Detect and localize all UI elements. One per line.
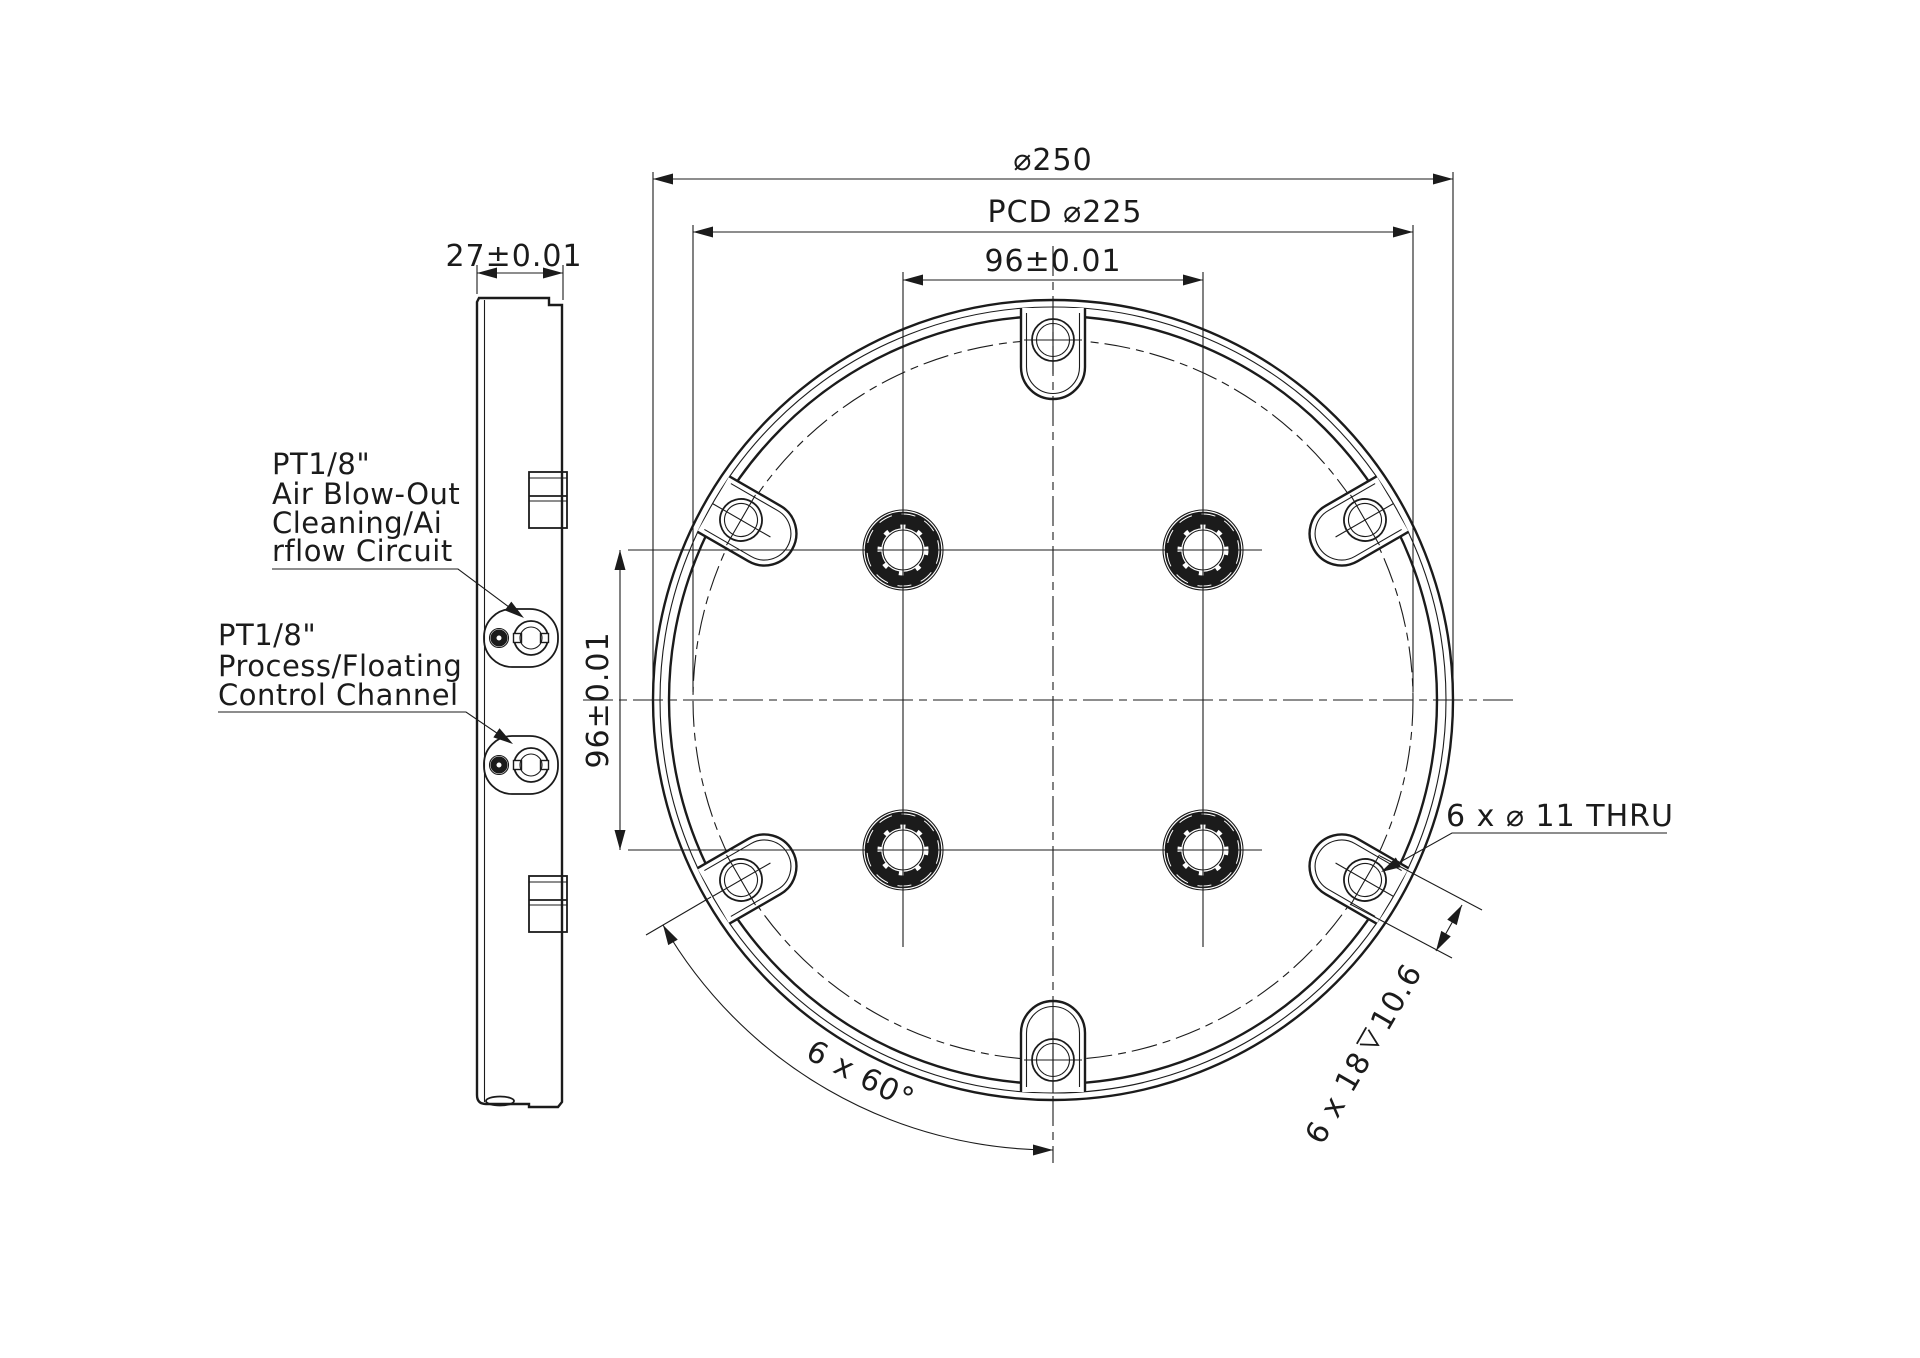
port2-label-line1: PT1/8" <box>218 618 316 652</box>
label-port-air-blowout: PT1/8" Air Blow-Out Cleaning/Ai rflow Ci… <box>272 447 527 622</box>
pcd-dim-text: PCD ⌀225 <box>988 195 1143 230</box>
bolt-angle-text: 6 x 60° <box>801 1034 920 1118</box>
port1-leader-line <box>272 569 521 616</box>
counterbore-text-group: 6 x 18 10.6 <box>1299 958 1430 1150</box>
drawing-canvas: 27±0.01 ⌀250 PCD ⌀225 96±0.01 96±0.01 <box>0 0 1920 1358</box>
plate-outline <box>477 298 562 1107</box>
port1-label-line1: PT1/8" <box>272 447 370 481</box>
counterbore-depth-text: 10.6 <box>1364 958 1430 1037</box>
port2-label-line3: Control Channel <box>218 678 459 712</box>
port-process-control <box>484 736 558 794</box>
port1-label-line4: rflow Circuit <box>272 534 453 568</box>
engineering-drawing-page: 27±0.01 ⌀250 PCD ⌀225 96±0.01 96±0.01 <box>0 0 1920 1358</box>
note-thru-holes: 6 x ⌀ 11 THRU <box>1378 799 1674 877</box>
port-air-blowout <box>484 609 558 667</box>
outer-diameter-text: ⌀250 <box>1013 143 1092 178</box>
depth-symbol-icon <box>1357 1027 1383 1053</box>
thickness-dim-text: 27±0.01 <box>445 239 582 274</box>
label-port-process-control: PT1/8" Process/Floating Control Channel <box>218 618 516 749</box>
dim-thickness: 27±0.01 <box>445 239 582 300</box>
hole-spacing-v-text: 96±0.01 <box>581 631 616 768</box>
side-view <box>477 298 567 1107</box>
counterbore-prefix-text: 6 x 18 <box>1299 1046 1379 1150</box>
dim-hole-spacing-horizontal: 96±0.01 <box>903 244 1203 286</box>
hole-spacing-h-text: 96±0.01 <box>984 244 1121 279</box>
port2-leader-line <box>218 712 510 742</box>
thru-holes-text: 6 x ⌀ 11 THRU <box>1446 799 1674 834</box>
